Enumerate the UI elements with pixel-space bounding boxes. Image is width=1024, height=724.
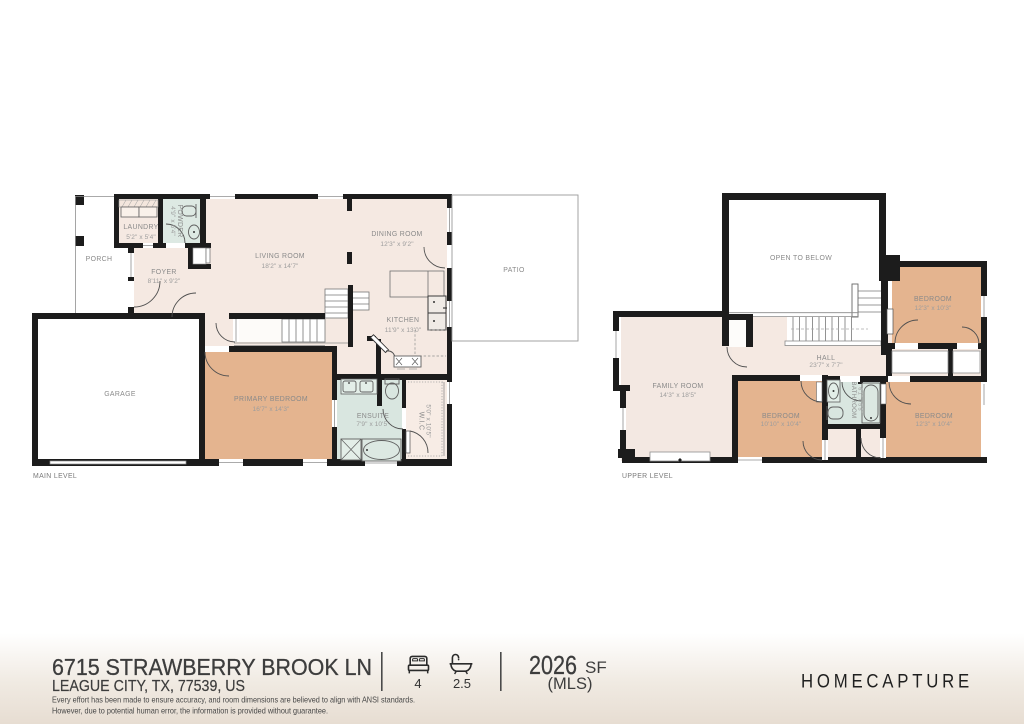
svg-text:LIVING ROOM: LIVING ROOM [255,253,305,260]
svg-text:MAIN LEVEL: MAIN LEVEL [33,473,77,480]
svg-text:KITCHEN: KITCHEN [387,317,420,324]
svg-text:PORCH: PORCH [86,256,113,263]
svg-text:OPEN TO BELOW: OPEN TO BELOW [770,255,832,262]
svg-text:W.I.C: W.I.C [418,412,425,431]
svg-text:12'3" x 9'2": 12'3" x 9'2" [380,241,414,248]
svg-text:7'9" x 10'5": 7'9" x 10'5" [356,421,390,428]
svg-text:18'2" x 14'7": 18'2" x 14'7" [262,263,300,270]
svg-text:ENSUITE: ENSUITE [357,413,389,420]
svg-text:5'2" x 5'4": 5'2" x 5'4" [126,234,156,241]
svg-text:GARAGE: GARAGE [104,391,136,398]
svg-text:5'0" x 10'5": 5'0" x 10'5" [425,404,432,438]
svg-text:POWDER: POWDER [176,204,183,237]
svg-text:However, due to potential huma: However, due to potential human error, t… [52,706,328,716]
svg-text:PATIO: PATIO [503,267,525,274]
svg-text:12'3" x 10'3": 12'3" x 10'3" [915,305,953,312]
svg-text:4'9" x 5'4": 4'9" x 5'4" [169,206,176,236]
svg-text:LAUNDRY: LAUNDRY [123,224,158,231]
svg-text:UPPER LEVEL: UPPER LEVEL [622,473,673,480]
svg-text:2.5: 2.5 [453,676,471,691]
svg-text:HALL: HALL [817,355,836,362]
svg-text:DINING ROOM: DINING ROOM [371,231,422,238]
svg-text:Every effort has been made to: Every effort has been made to ensure acc… [52,695,415,705]
svg-text:(MLS): (MLS) [548,675,593,693]
svg-text:PRIMARY BEDROOM: PRIMARY BEDROOM [234,396,308,403]
svg-text:FAMILY ROOM: FAMILY ROOM [652,383,703,390]
svg-text:BATHROOM: BATHROOM [850,381,856,418]
svg-text:HOMECAPTURE: HOMECAPTURE [801,671,973,693]
svg-text:BEDROOM: BEDROOM [914,296,952,303]
svg-text:LEAGUE CITY, TX, 77539, US: LEAGUE CITY, TX, 77539, US [52,678,245,695]
svg-text:10'10" x 10'4": 10'10" x 10'4" [761,421,802,428]
svg-text:FOYER: FOYER [151,269,177,276]
svg-text:BEDROOM: BEDROOM [915,413,953,420]
svg-text:14'3" x 18'5": 14'3" x 18'5" [660,392,698,399]
svg-text:4: 4 [414,676,421,691]
svg-text:BEDROOM: BEDROOM [762,413,800,420]
svg-text:23'7" x 7'7": 23'7" x 7'7" [809,362,843,369]
svg-text:6'1" x 5'5": 6'1" x 5'5" [857,387,863,413]
svg-text:8'11" x 9'2": 8'11" x 9'2" [148,278,181,285]
svg-text:16'7" x 14'3": 16'7" x 14'3" [253,406,291,413]
svg-text:11'9" x 13'0": 11'9" x 13'0" [385,327,422,334]
svg-text:6715 STRAWBERRY BROOK LN: 6715 STRAWBERRY BROOK LN [52,654,372,680]
svg-text:12'3" x 10'4": 12'3" x 10'4" [916,421,954,428]
